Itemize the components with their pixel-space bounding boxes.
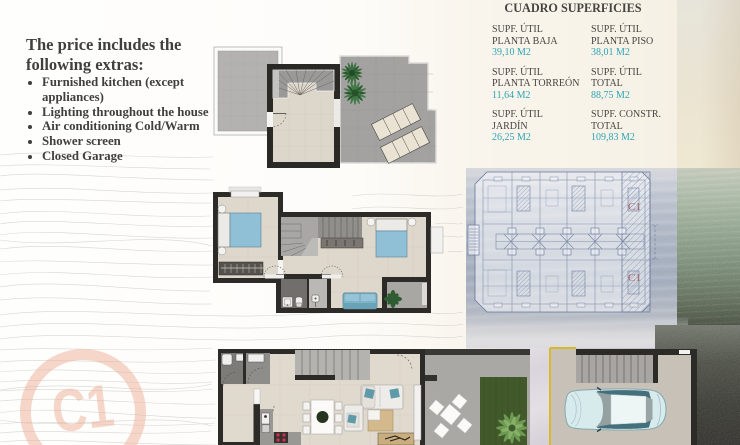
svg-text:C1: C1 (48, 371, 117, 445)
svg-text:C1: C1 (628, 201, 641, 213)
svg-text:C1: C1 (628, 272, 641, 284)
